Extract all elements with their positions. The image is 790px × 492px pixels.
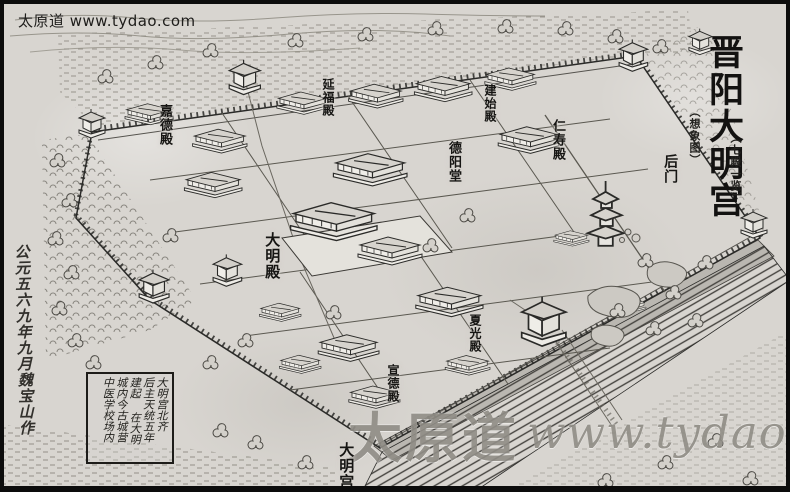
title-note-imagination: （想象图） (686, 106, 702, 181)
label-daming-palace: 大明宫 (338, 442, 354, 490)
caption-column: 后主天统五年 (141, 377, 154, 459)
caption-column: 建起 在大明 (128, 377, 141, 459)
caption-column: 中医学校场内 (101, 377, 114, 459)
caption-column: 城内今古城营 (114, 377, 127, 459)
label-deyang-hall: 德阳堂 (446, 141, 460, 183)
caption-column: 大明宫北齐 (155, 377, 168, 459)
title-note-seven-halls: （七殿一览） (727, 132, 743, 262)
label-yanfu-hall: 延福殿 (321, 78, 334, 117)
label-xuande-hall: 宣德殿 (386, 364, 399, 403)
watermark-site-url: www.tydao.com (527, 406, 790, 459)
label-back-gate: 后门 (662, 154, 677, 184)
watermark-site-name: 太原道 (348, 394, 519, 473)
caption-box: 大明宫北齐 后主天统五年 建起 在大明 城内今古城营 中医学校场内 (86, 372, 174, 464)
label-xiaguang-hall: 夏光殿 (468, 314, 481, 353)
scanned-palace-map: 太原道 www.tydao.com 太原道 www.tydao.com 晋阳大明… (0, 0, 790, 492)
watermark-bottom-right: 太原道 www.tydao.com (348, 394, 790, 473)
label-renshou-hall: 仁寿殿 (550, 119, 564, 161)
label-daming-hall: 大明殿 (264, 232, 280, 280)
label-jianshi-hall: 建始殿 (483, 84, 496, 123)
label-jiade-hall: 嘉德殿 (157, 104, 171, 146)
watermark-top-left: 太原道 www.tydao.com (18, 10, 196, 31)
